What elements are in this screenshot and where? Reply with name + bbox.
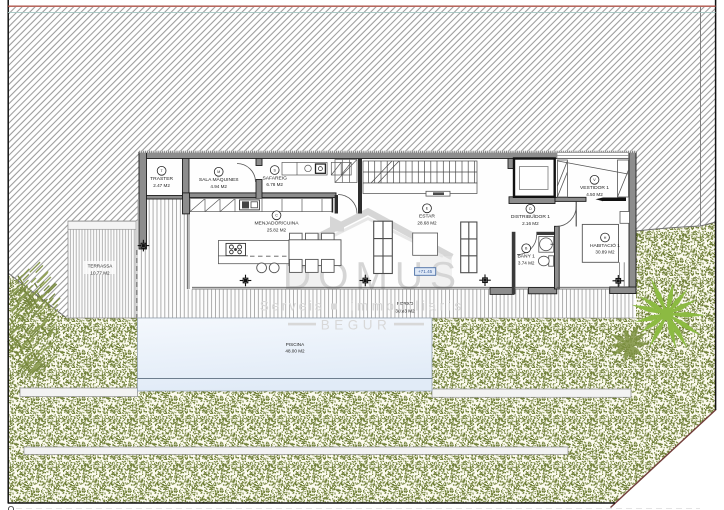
svg-text:4.50 M2: 4.50 M2: [586, 192, 603, 197]
svg-text:2.16 M2: 2.16 M2: [522, 221, 539, 226]
svg-text:SAFAREIG: SAFAREIG: [262, 175, 287, 181]
svg-text:3.74 M2: 3.74 M2: [518, 261, 535, 266]
svg-text:2.47 M2: 2.47 M2: [153, 183, 170, 188]
svg-text:D: D: [529, 207, 532, 211]
svg-text:30.89 M2: 30.89 M2: [595, 250, 615, 255]
svg-text:25.82 M2: 25.82 M2: [267, 228, 287, 233]
svg-text:VESTIDOR 1: VESTIDOR 1: [580, 185, 609, 191]
svg-text:48.00 M2: 48.00 M2: [285, 348, 305, 353]
svg-text:6.78 M2: 6.78 M2: [266, 182, 283, 187]
svg-text:immobiliaris: immobiliaris: [350, 299, 464, 314]
svg-text:MENJADOR/CUINA: MENJADOR/CUINA: [254, 221, 299, 227]
svg-text:PISCINA: PISCINA: [286, 342, 305, 347]
svg-text:C: C: [275, 214, 278, 218]
svg-text:H: H: [604, 236, 607, 240]
svg-text:4.94 M2: 4.94 M2: [210, 184, 227, 189]
svg-text:+71.45: +71.45: [418, 269, 433, 274]
svg-text:Serveis: Serveis: [260, 299, 325, 314]
svg-text:BANY 1: BANY 1: [518, 254, 536, 260]
svg-text:TERRASSA: TERRASSA: [88, 263, 114, 268]
svg-text:TRASTER: TRASTER: [150, 176, 173, 182]
svg-text:M: M: [217, 170, 220, 174]
svg-text:ESTAR: ESTAR: [419, 214, 435, 220]
svg-text:10.77 M2: 10.77 M2: [90, 271, 110, 276]
svg-text:28.68 M2: 28.68 M2: [417, 221, 437, 226]
svg-text:BEGUR: BEGUR: [321, 318, 392, 333]
